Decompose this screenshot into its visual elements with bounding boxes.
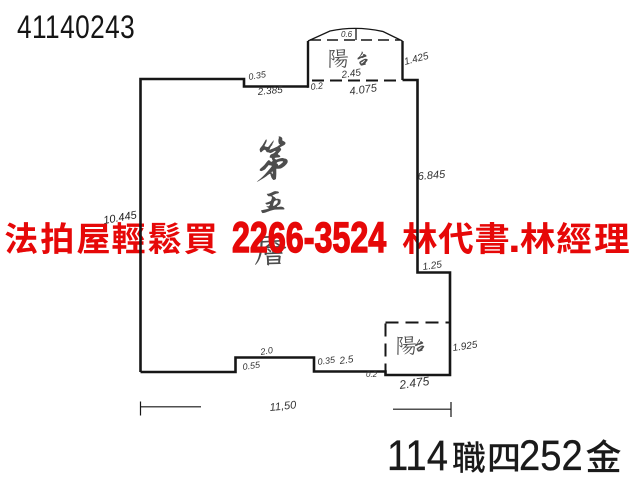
svg-text:252: 252 (519, 431, 583, 480)
svg-text:114: 114 (387, 431, 448, 480)
